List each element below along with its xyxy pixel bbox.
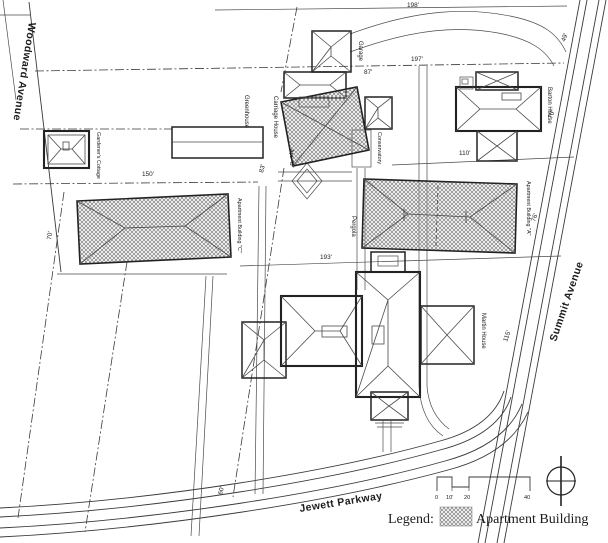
site-plan-page: Woodward Avenue Summit Avenue Jewett Par… xyxy=(0,0,608,543)
dim-110: 110' xyxy=(459,150,470,157)
street-labels: Woodward Avenue Summit Avenue Jewett Par… xyxy=(10,22,586,515)
dim-150: 150' xyxy=(142,171,154,178)
legend: Legend: Apartment Building xyxy=(388,507,588,527)
north-arrow-icon xyxy=(546,456,576,506)
garage-label: Garage xyxy=(357,41,363,62)
scale-40: 40 xyxy=(524,495,530,501)
greenhouse-footprint xyxy=(172,127,263,158)
legend-title: Legend: xyxy=(388,512,434,527)
scale-10: 10' xyxy=(446,495,453,501)
conservatory-label: Conservatory xyxy=(376,132,382,164)
dim-193: 193' xyxy=(320,254,332,261)
barton-house-footprint xyxy=(456,72,541,161)
scale-0: 0 xyxy=(435,495,438,501)
apartment-a-label: Apartment Building "A" xyxy=(525,181,531,236)
greenhouse-label: Greenhouse xyxy=(243,95,249,129)
garage-footprint xyxy=(312,31,351,72)
apartment-building-a-footprint xyxy=(362,179,517,253)
scale-20: 20 xyxy=(464,495,470,501)
martin-house-label: Martin House xyxy=(480,313,486,349)
jewett-parkway-label: Jewett Parkway xyxy=(299,490,384,515)
dim-70-east: 70' xyxy=(547,109,556,119)
dim-49: 49' xyxy=(560,32,569,42)
garage-driveway xyxy=(350,11,566,66)
dim-83: 83' xyxy=(258,164,267,174)
woodward-avenue-label: Woodward Avenue xyxy=(10,22,37,122)
summit-avenue-label: Summit Avenue xyxy=(547,260,586,343)
dim-87: 87' xyxy=(364,69,372,76)
martin-house-footprint xyxy=(242,252,474,427)
site-plan-drawing: Woodward Avenue Summit Avenue Jewett Par… xyxy=(0,0,608,543)
driveways-walkways xyxy=(57,66,449,536)
dim-115: 115' xyxy=(502,330,512,343)
apartment-c-label: Apartment Building "C" xyxy=(236,198,242,253)
apartment-building-c-footprint xyxy=(77,194,231,264)
apartment-b-label: Apt. "B" xyxy=(288,149,294,168)
legend-swatch xyxy=(440,507,472,526)
dim-70-west: 70' xyxy=(46,231,54,240)
gardeners-cottage-label: Gardener's Cottage xyxy=(95,132,101,179)
legend-entry-label: Apartment Building xyxy=(476,512,588,527)
dim-197: 197' xyxy=(411,56,423,63)
pergola-label: Pergola xyxy=(350,216,356,237)
carriage-house-label: Carriage House xyxy=(272,96,278,139)
gardeners-cottage-footprint xyxy=(44,131,89,168)
dim-198: 198' xyxy=(407,2,419,9)
